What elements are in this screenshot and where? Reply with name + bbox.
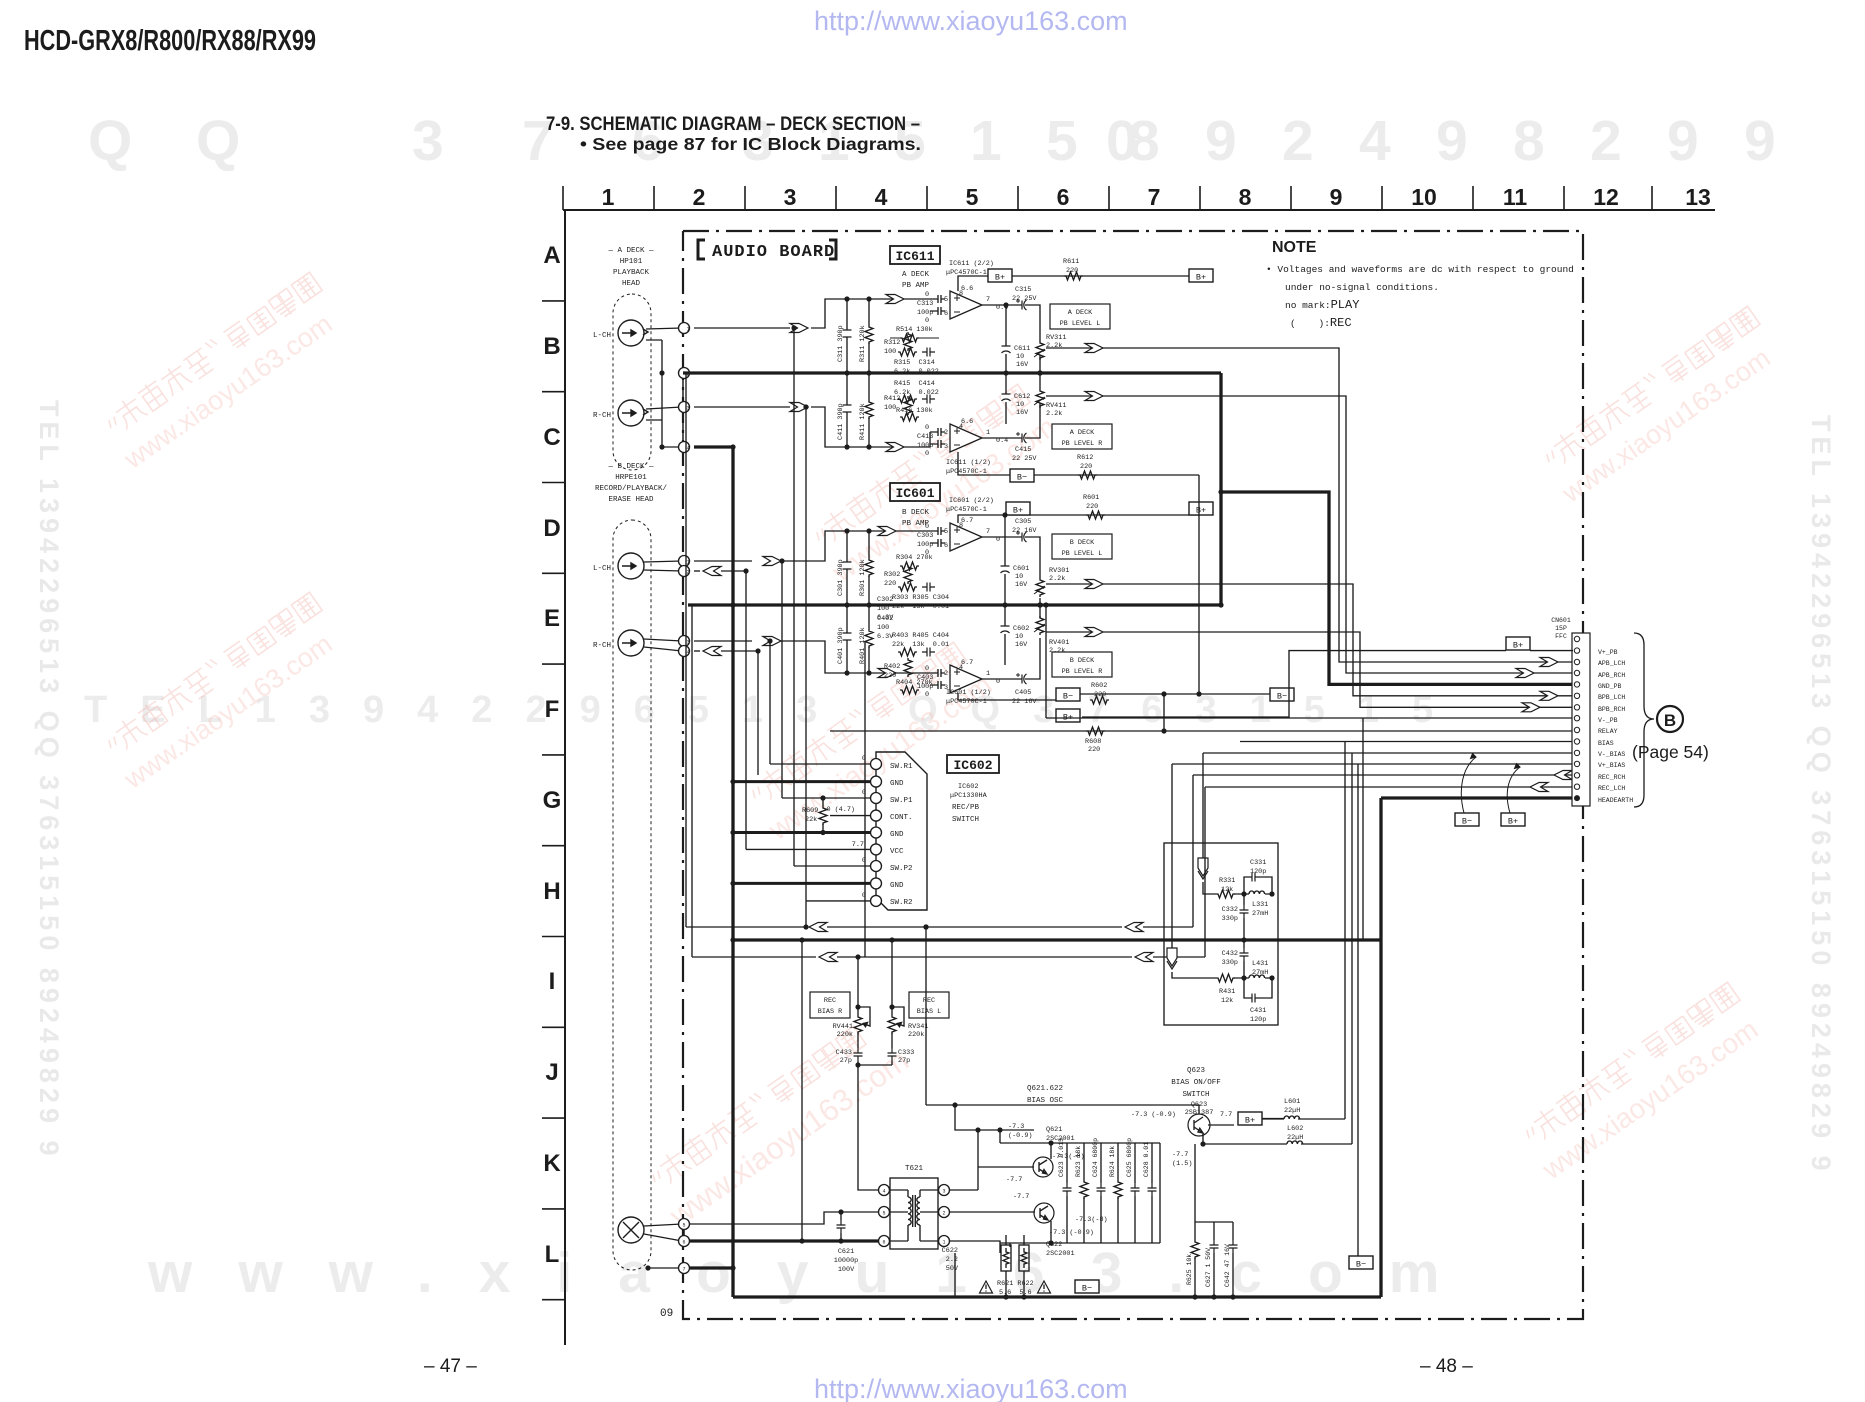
svg-text:22 25V: 22 25V [1012, 455, 1037, 463]
svg-text:R625 10k: R625 10k [1186, 1254, 1193, 1285]
svg-text:C625 6800p: C625 6800p [1126, 1138, 1133, 1177]
svg-text:L-CH: L-CH [593, 565, 611, 573]
svg-text:REC_LCH: REC_LCH [1598, 785, 1625, 792]
svg-text:10000p: 10000p [834, 1257, 858, 1265]
svg-text:12k: 12k [1221, 997, 1233, 1005]
svg-text:0: 0 [925, 450, 929, 458]
svg-text:C331: C331 [1250, 859, 1266, 867]
svg-text:3: 3 [686, 640, 689, 646]
svg-text:C622: C622 [942, 1247, 958, 1255]
svg-text:– 48 –: – 48 – [1420, 1356, 1473, 1377]
svg-text:CN601: CN601 [1551, 617, 1571, 624]
svg-text:2: 2 [693, 184, 706, 210]
svg-text:A DECK: A DECK [1068, 309, 1093, 317]
svg-text:100p: 100p [917, 683, 933, 691]
svg-text:B DECK: B DECK [1070, 657, 1095, 665]
svg-text:R411 120k: R411 120k [859, 403, 867, 440]
svg-text:100: 100 [884, 404, 896, 412]
svg-text:RV301: RV301 [1049, 567, 1069, 575]
svg-text:22μH: 22μH [1287, 1134, 1303, 1142]
svg-text:(-0.9): (-0.9) [1008, 1132, 1032, 1140]
svg-text:( ):REC: ( ):REC [1290, 316, 1352, 330]
svg-text:2: 2 [1590, 109, 1622, 173]
svg-text:330p: 330p [1222, 915, 1238, 923]
svg-text:5: 5 [944, 528, 948, 536]
svg-text:100p: 100p [917, 309, 933, 317]
svg-text:4: 4 [686, 650, 689, 656]
svg-text:PB LEVEL R: PB LEVEL R [1062, 440, 1103, 448]
svg-text:7-9. SCHEMATIC DIAGRAM – DECK: 7-9. SCHEMATIC DIAGRAM – DECK SECTION – [546, 113, 920, 135]
svg-text:CONT.: CONT. [890, 814, 913, 822]
svg-text:10: 10 [1015, 573, 1023, 581]
svg-text:6: 6 [682, 1240, 685, 1246]
svg-text:HEAD: HEAD [622, 280, 641, 288]
svg-text:2: 2 [686, 570, 689, 576]
svg-text:(Page 54): (Page 54) [1632, 742, 1709, 762]
svg-text:R609: R609 [802, 807, 818, 815]
svg-text:6.6: 6.6 [961, 418, 973, 426]
svg-text:NOTE: NOTE [1272, 239, 1317, 256]
svg-text:-7.7: -7.7 [1013, 1193, 1029, 1201]
svg-text:C315: C315 [1015, 286, 1031, 294]
svg-text:6.6: 6.6 [961, 285, 973, 293]
svg-text:PLAYBACK: PLAYBACK [613, 269, 650, 277]
svg-text:A DECK: A DECK [902, 271, 930, 279]
svg-text:C624 6800p: C624 6800p [1092, 1138, 1099, 1177]
svg-text:13: 13 [1685, 184, 1711, 210]
svg-text:J: J [545, 1059, 558, 1086]
svg-text:4: 4 [875, 184, 888, 210]
svg-text:22μH: 22μH [1284, 1107, 1300, 1115]
svg-text:C621: C621 [838, 1248, 854, 1256]
svg-text:220k: 220k [908, 1031, 924, 1039]
svg-text:R623 18k: R623 18k [1075, 1146, 1082, 1177]
svg-text:D: D [543, 515, 560, 542]
svg-text:15P: 15P [1555, 625, 1567, 632]
svg-text:220: 220 [884, 672, 896, 680]
svg-text:IC611 (1/2): IC611 (1/2) [946, 459, 991, 467]
svg-text:C415: C415 [1015, 446, 1031, 454]
svg-text:BPB_RCH: BPB_RCH [1598, 706, 1625, 713]
svg-text:4: 4 [1359, 109, 1391, 173]
svg-text:2.2: 2.2 [946, 1256, 958, 1264]
svg-text:6: 6 [944, 310, 948, 318]
svg-text:100: 100 [877, 605, 889, 613]
svg-text:R331: R331 [1219, 877, 1235, 885]
svg-text:22k 13k 0.01: 22k 13k 0.01 [892, 641, 949, 649]
svg-text:7: 7 [986, 296, 990, 304]
svg-text:0: 0 [925, 291, 929, 299]
svg-text:9: 9 [1667, 109, 1699, 173]
svg-text:B−: B− [1082, 1284, 1092, 1294]
svg-text:R514 130k: R514 130k [896, 326, 933, 334]
svg-text:TEL 13942296513 QQ 376315150 8: TEL 13942296513 QQ 376315150 89249829 9 [1806, 415, 1836, 1175]
svg-text:7: 7 [682, 1267, 685, 1273]
svg-text:4: 4 [882, 1189, 885, 1195]
svg-text:5: 5 [1046, 109, 1078, 173]
svg-text:16V: 16V [1016, 409, 1029, 417]
svg-text:REC/PB: REC/PB [952, 804, 980, 812]
svg-text:REC: REC [824, 997, 836, 1005]
svg-text:C627 1 50V: C627 1 50V [1205, 1248, 1212, 1287]
svg-text:100p: 100p [917, 541, 933, 549]
svg-text:7: 7 [986, 528, 990, 536]
svg-text:B+: B+ [1196, 506, 1206, 516]
svg-text:8: 8 [1128, 109, 1160, 173]
svg-text:220: 220 [1088, 746, 1100, 754]
svg-text:50V: 50V [946, 1265, 959, 1273]
svg-text:L331: L331 [1252, 901, 1268, 909]
svg-text:6: 6 [882, 1240, 885, 1246]
svg-text:HEADEARTH: HEADEARTH [1598, 797, 1633, 804]
svg-text:R415 C414: R415 C414 [894, 380, 935, 388]
svg-text:I: I [549, 968, 556, 995]
svg-text:B: B [1664, 711, 1676, 730]
svg-text:SW.P1: SW.P1 [890, 797, 913, 805]
svg-text:μPC1330HA: μPC1330HA [950, 792, 988, 800]
svg-text:5: 5 [966, 184, 979, 210]
svg-text:V-_BIAS: V-_BIAS [1598, 751, 1625, 758]
svg-text:B+: B+ [1196, 273, 1206, 283]
svg-text:RECORD/PLAYBACK/: RECORD/PLAYBACK/ [595, 485, 668, 493]
svg-text:C642 47 16V: C642 47 16V [1224, 1244, 1231, 1287]
svg-text:Q: Q [196, 109, 240, 173]
svg-text:C: C [543, 424, 560, 451]
svg-text:IC602: IC602 [958, 783, 978, 791]
svg-text:2SC2001: 2SC2001 [1046, 1250, 1075, 1258]
svg-text:B−: B− [1017, 473, 1027, 483]
svg-text:B−: B− [1277, 692, 1287, 702]
svg-text:APB_LCH: APB_LCH [1598, 660, 1625, 667]
svg-text:R403 R405 C404: R403 R405 C404 [892, 632, 949, 640]
svg-text:C602: C602 [1013, 625, 1029, 633]
svg-text:— B DECK —: — B DECK — [607, 463, 654, 471]
svg-text:— A DECK —: — A DECK — [607, 247, 654, 255]
svg-text:10: 10 [1016, 401, 1024, 409]
svg-text:TEL 13942296513 QQ 376315150 8: TEL 13942296513 QQ 376315150 89249829 9 [34, 400, 64, 1160]
svg-text:VCC: VCC [890, 848, 904, 856]
svg-text:R602: R602 [1091, 682, 1107, 690]
svg-text:8: 8 [1513, 109, 1545, 173]
svg-text:B+: B+ [995, 273, 1005, 283]
svg-text:11: 11 [1503, 184, 1528, 210]
svg-text:HCD-GRX8/R800/RX88/RX99: HCD-GRX8/R800/RX88/RX99 [24, 25, 316, 57]
svg-text:7.7: 7.7 [852, 841, 864, 849]
svg-text:C401 390p: C401 390p [837, 627, 845, 664]
svg-text:330p: 330p [1222, 959, 1238, 967]
svg-text:R611: R611 [1063, 258, 1079, 266]
svg-text:100: 100 [877, 624, 889, 632]
svg-text:H: H [543, 878, 560, 905]
svg-text:BIAS L: BIAS L [917, 1008, 941, 1016]
svg-text:0: 0 [925, 691, 929, 699]
svg-text:IC602: IC602 [953, 758, 992, 773]
svg-text:RV401: RV401 [1049, 639, 1069, 647]
svg-text:9: 9 [1205, 109, 1237, 173]
svg-text:C411 390p: C411 390p [837, 403, 845, 440]
svg-text:B+: B+ [1013, 506, 1023, 516]
svg-text:5: 5 [682, 1223, 685, 1229]
svg-text:R621 R622: R621 R622 [997, 1280, 1034, 1288]
svg-text:10: 10 [1016, 353, 1024, 361]
svg-text:R601: R601 [1083, 494, 1099, 502]
svg-text:IC601 (2/2): IC601 (2/2) [949, 497, 994, 505]
svg-text:Q623: Q623 [1187, 1067, 1206, 1075]
svg-text:2: 2 [1282, 109, 1314, 173]
svg-text:FFC: FFC [1555, 633, 1567, 640]
svg-text:R312: R312 [884, 339, 900, 347]
svg-text:BIAS ON/OFF: BIAS ON/OFF [1171, 1079, 1221, 1087]
svg-text:-7.7: -7.7 [1172, 1151, 1188, 1159]
svg-text:0: 0 [925, 424, 929, 432]
svg-text:– 47 –: – 47 – [424, 1356, 477, 1377]
svg-text:V+_PB: V+_PB [1598, 649, 1618, 656]
svg-text:REC: REC [923, 997, 935, 1005]
svg-text:• See page 87 for IC Block Dia: • See page 87 for IC Block Diagrams. [580, 134, 921, 154]
svg-text:PB LEVEL L: PB LEVEL L [1060, 320, 1101, 328]
svg-text:9: 9 [1330, 184, 1343, 210]
svg-text:B: B [543, 333, 560, 360]
svg-text:• Voltages and waveforms are d: • Voltages and waveforms are dc with res… [1266, 264, 1574, 275]
svg-text:A DECK: A DECK [1070, 429, 1095, 437]
svg-text:8: 8 [1239, 184, 1252, 210]
svg-text:22k: 22k [805, 816, 817, 824]
svg-text:BIAS: BIAS [1598, 740, 1614, 747]
svg-text:R431: R431 [1219, 988, 1235, 996]
svg-text:6.7: 6.7 [961, 659, 973, 667]
svg-text:C313: C313 [917, 300, 933, 308]
svg-text:μPC4570C-1: μPC4570C-1 [946, 506, 987, 514]
svg-text:27mH: 27mH [1252, 969, 1268, 977]
svg-text:5: 5 [882, 1211, 885, 1217]
svg-text:IC611 (2/2): IC611 (2/2) [949, 260, 994, 268]
svg-text:5: 5 [944, 296, 948, 304]
svg-text:1: 1 [986, 429, 990, 437]
svg-text:SW.R2: SW.R2 [890, 899, 913, 907]
svg-text:Q: Q [88, 109, 132, 173]
svg-text:1: 1 [686, 560, 689, 566]
svg-text:R612: R612 [1077, 454, 1093, 462]
svg-text:10: 10 [1015, 633, 1023, 641]
svg-text:0 (4.7): 0 (4.7) [826, 806, 855, 814]
svg-text:HRPE101: HRPE101 [615, 474, 647, 482]
svg-text:Q622: Q622 [1046, 1241, 1062, 1249]
svg-text:27p: 27p [898, 1057, 910, 1065]
svg-text:V-_PB: V-_PB [1598, 717, 1618, 724]
svg-text:PB LEVEL R: PB LEVEL R [1062, 668, 1103, 676]
svg-text:C433: C433 [836, 1049, 852, 1057]
svg-text:2: 2 [944, 670, 948, 678]
svg-text:16V: 16V [1016, 361, 1029, 369]
svg-text:R315 C314: R315 C314 [894, 359, 935, 367]
svg-text:0: 0 [925, 317, 929, 325]
svg-text:L-CH: L-CH [593, 332, 611, 340]
svg-text:RV441: RV441 [833, 1023, 853, 1031]
svg-text:1: 1 [686, 327, 689, 333]
svg-text:9: 9 [1436, 109, 1468, 173]
svg-text:Q621: Q621 [1046, 1126, 1062, 1134]
svg-text:120p: 120p [1250, 1016, 1266, 1024]
svg-text:1: 1 [986, 670, 990, 678]
svg-text:C628 0.01: C628 0.01 [1143, 1142, 1150, 1177]
svg-text:L431: L431 [1252, 960, 1268, 968]
svg-text:C302: C302 [877, 596, 893, 604]
svg-text:4: 4 [686, 446, 689, 452]
svg-text:1: 1 [970, 109, 1002, 173]
svg-text:9: 9 [1744, 109, 1776, 173]
svg-text:C612: C612 [1014, 393, 1030, 401]
svg-text:PB LEVEL L: PB LEVEL L [1062, 550, 1103, 558]
svg-text:B−: B− [1063, 692, 1073, 702]
svg-text:100V: 100V [838, 1266, 855, 1274]
svg-text:R402: R402 [884, 663, 900, 671]
svg-text:K: K [543, 1150, 561, 1177]
svg-text:-7.3 (-0.9): -7.3 (-0.9) [1049, 1229, 1094, 1237]
svg-text:12: 12 [1593, 184, 1619, 210]
svg-text:R-CH: R-CH [593, 412, 611, 420]
svg-text:1: 1 [602, 184, 615, 210]
svg-text:0: 0 [925, 665, 929, 673]
svg-text:3: 3 [942, 1189, 945, 1195]
svg-text:ERASE HEAD: ERASE HEAD [608, 496, 654, 504]
svg-text:RV411: RV411 [1046, 402, 1066, 410]
svg-text:C305: C305 [1015, 518, 1031, 526]
svg-text:5.6 5.6: 5.6 5.6 [999, 1289, 1032, 1297]
svg-text:REC_RCH: REC_RCH [1598, 774, 1625, 781]
svg-text:220k: 220k [837, 1031, 853, 1039]
svg-text:R401 120k: R401 120k [859, 627, 867, 664]
svg-text:L602: L602 [1287, 1125, 1303, 1133]
svg-text:Q621.622: Q621.622 [1027, 1085, 1063, 1093]
svg-text:L601: L601 [1284, 1098, 1300, 1106]
svg-text:2: 2 [942, 1211, 945, 1217]
svg-text:B+: B+ [1513, 641, 1523, 651]
svg-text:6.2k 0.022: 6.2k 0.022 [894, 389, 939, 397]
svg-text:3: 3 [412, 109, 444, 173]
svg-text:μPC4570C-1: μPC4570C-1 [946, 698, 987, 706]
svg-text:C601: C601 [1013, 565, 1029, 573]
svg-text:RV311: RV311 [1046, 334, 1066, 342]
svg-text:0: 0 [925, 523, 929, 531]
svg-text:-7.3(-8): -7.3(-8) [1075, 1216, 1108, 1224]
svg-text:B−: B− [1356, 1260, 1366, 1270]
svg-text:B DECK: B DECK [902, 509, 930, 517]
svg-text:6.7: 6.7 [961, 517, 973, 525]
svg-text:-7.7: -7.7 [1006, 1176, 1022, 1184]
svg-text:IC611: IC611 [895, 249, 934, 264]
svg-text:09: 09 [660, 1308, 673, 1320]
svg-text:SW.R1: SW.R1 [890, 763, 913, 771]
svg-text:0: 0 [925, 549, 929, 557]
svg-text:C303: C303 [917, 532, 933, 540]
svg-text:SWITCH: SWITCH [1182, 1091, 1209, 1099]
svg-text:2.2k: 2.2k [1046, 342, 1062, 350]
svg-text:PB AMP: PB AMP [902, 282, 930, 290]
svg-text:under no-signal conditions.: under no-signal conditions. [1285, 282, 1439, 293]
svg-text:A: A [543, 242, 560, 269]
svg-text:-7.3 (-0.9): -7.3 (-0.9) [1131, 1111, 1176, 1119]
svg-text:E: E [544, 605, 560, 632]
svg-text:GND: GND [890, 882, 904, 890]
svg-text:G: G [543, 787, 562, 814]
svg-text:R303 R305 C304: R303 R305 C304 [892, 594, 949, 602]
svg-text:APB_RCH: APB_RCH [1598, 672, 1625, 679]
svg-text:7: 7 [1148, 184, 1161, 210]
svg-text:F: F [545, 696, 560, 723]
svg-text:http://www.xiaoyu163.com: http://www.xiaoyu163.com [814, 6, 1128, 36]
svg-text:100p: 100p [917, 442, 933, 450]
svg-text:HP101: HP101 [620, 258, 643, 266]
svg-text:C311 390p: C311 390p [837, 325, 845, 362]
svg-text:C611: C611 [1014, 345, 1030, 353]
svg-text:10: 10 [1411, 184, 1437, 210]
svg-text:3: 3 [686, 406, 689, 412]
svg-text:B+: B+ [1245, 1116, 1255, 1126]
svg-text:3: 3 [784, 184, 797, 210]
svg-text:C332: C332 [1222, 906, 1238, 914]
svg-text:1: 1 [942, 1240, 945, 1246]
svg-text:BIAS OSC: BIAS OSC [1027, 1097, 1064, 1105]
svg-text:BPB_LCH: BPB_LCH [1598, 694, 1625, 701]
svg-text:220: 220 [1086, 503, 1098, 511]
svg-text:3: 3 [944, 443, 948, 451]
svg-text:R416 130k: R416 130k [896, 407, 933, 415]
svg-text:C432: C432 [1222, 950, 1238, 958]
svg-text:C413: C413 [917, 433, 933, 441]
svg-text:2.2k: 2.2k [1046, 410, 1062, 418]
svg-text:RELAY: RELAY [1598, 728, 1618, 735]
svg-text:C405: C405 [1015, 689, 1031, 697]
svg-text:AUDIO BOARD: AUDIO BOARD [712, 243, 835, 262]
svg-text:http://www.xiaoyu163.com: http://www.xiaoyu163.com [814, 1374, 1128, 1402]
svg-text:C431: C431 [1250, 1007, 1266, 1015]
svg-text:BIAS R: BIAS R [818, 1008, 842, 1016]
svg-text:IC601: IC601 [895, 486, 934, 501]
svg-text:R301 120k: R301 120k [859, 559, 867, 596]
svg-text:GND: GND [890, 831, 904, 839]
svg-text:C301 390p: C301 390p [837, 559, 845, 596]
svg-text:V+_BIAS: V+_BIAS [1598, 762, 1625, 769]
svg-text:-7.3: -7.3 [1008, 1123, 1024, 1131]
svg-text:2.2k: 2.2k [1049, 575, 1065, 583]
svg-text:R-CH: R-CH [593, 642, 611, 650]
svg-text:B DECK: B DECK [1070, 539, 1095, 547]
svg-text:16V: 16V [1015, 641, 1028, 649]
svg-text:R608: R608 [1085, 738, 1101, 746]
svg-text:SW.P2: SW.P2 [890, 865, 913, 873]
svg-text:6: 6 [944, 542, 948, 550]
svg-text:SWITCH: SWITCH [952, 816, 979, 824]
svg-text:R302: R302 [884, 571, 900, 579]
svg-text:C623 0.015: C623 0.015 [1058, 1138, 1065, 1177]
svg-text:27p: 27p [840, 1057, 852, 1065]
svg-text:R624 18k: R624 18k [1109, 1146, 1116, 1177]
svg-text:GND_PB: GND_PB [1598, 683, 1622, 690]
svg-text:7.7: 7.7 [1220, 1111, 1232, 1119]
svg-text:C402: C402 [877, 615, 893, 623]
svg-text:22 16V: 22 16V [1012, 698, 1037, 706]
svg-text:220: 220 [884, 580, 896, 588]
svg-text:B+: B+ [1508, 817, 1518, 827]
svg-text:6: 6 [1057, 184, 1070, 210]
svg-text:C333: C333 [898, 1049, 914, 1057]
svg-text:27mH: 27mH [1252, 910, 1268, 918]
svg-text:IC601 (1/2): IC601 (1/2) [946, 689, 991, 697]
svg-text:22k 13k 0.01: 22k 13k 0.01 [892, 603, 949, 611]
svg-text:6.2k 0.022: 6.2k 0.022 [894, 368, 939, 376]
svg-text:L: L [545, 1241, 560, 1268]
svg-text:(1.5): (1.5) [1172, 1160, 1192, 1168]
